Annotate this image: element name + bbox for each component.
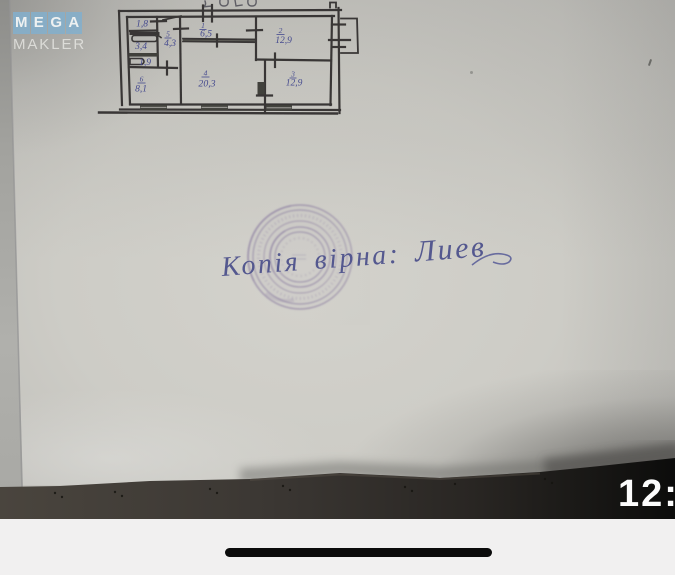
svg-text:20,3: 20,3	[198, 79, 215, 90]
svg-text:1,9: 1,9	[139, 58, 151, 68]
svg-text:3: 3	[290, 70, 295, 79]
svg-text:6: 6	[140, 75, 144, 84]
svg-text:12,9: 12,9	[275, 36, 292, 46]
svg-text:2: 2	[279, 26, 283, 35]
svg-text:1,8: 1,8	[136, 20, 148, 30]
svg-text:4: 4	[204, 69, 208, 78]
svg-text:12,9: 12,9	[286, 79, 303, 89]
svg-text:4,3: 4,3	[164, 39, 176, 49]
svg-text:5: 5	[166, 30, 170, 39]
svg-text:3,4: 3,4	[134, 42, 147, 52]
svg-text:6,5: 6,5	[200, 30, 212, 40]
svg-text:8,1: 8,1	[135, 85, 147, 95]
